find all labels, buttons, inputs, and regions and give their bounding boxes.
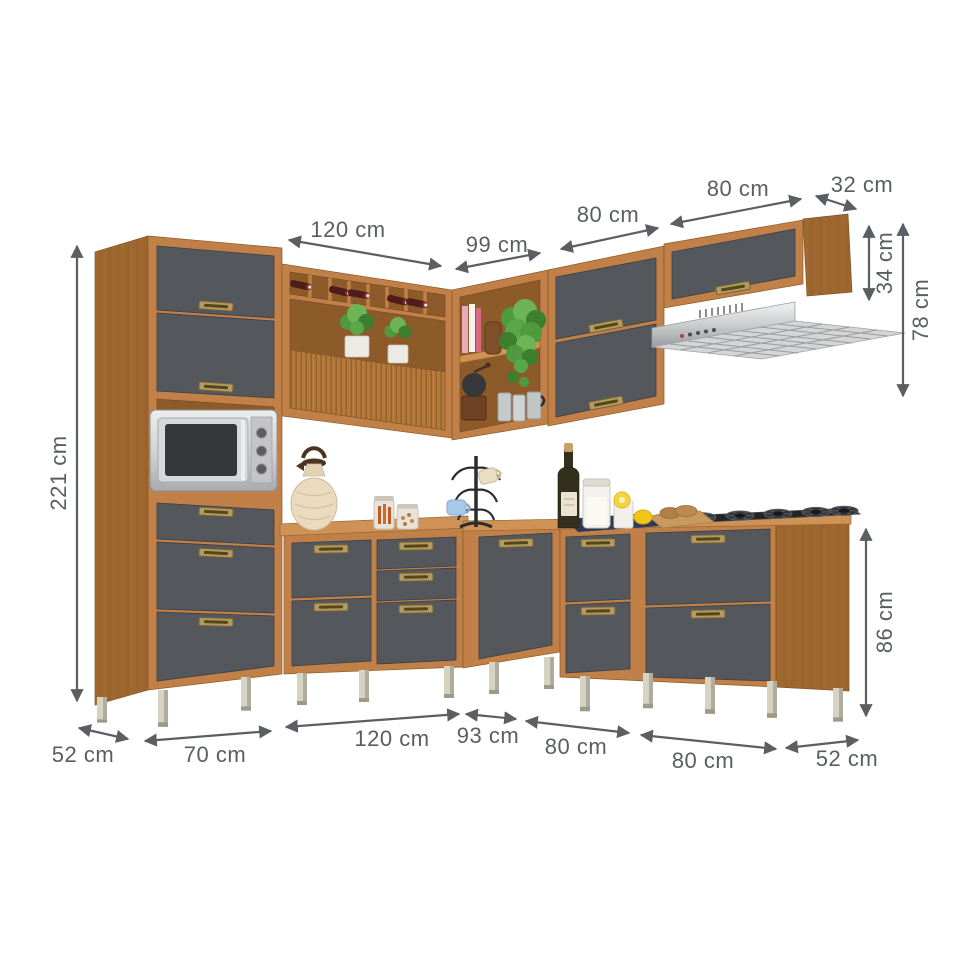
kitchen-dimension-diagram: 120 cm 99 cm 80 cm 80 cm 32 cm 34 cm 78 … (0, 0, 975, 975)
base-cabinet-left (284, 528, 463, 705)
dim-arrow-tall-width (145, 731, 271, 741)
hood-power-light (680, 334, 684, 338)
base-cabinet-corner (463, 525, 560, 694)
dim-label-tall-width: 70 cm (184, 742, 246, 767)
dim-label-base-right-1-width: 80 cm (545, 734, 607, 759)
dim-label-wall-depth: 32 cm (831, 172, 893, 197)
glass-with-lemon (614, 492, 633, 528)
wine-bottle (558, 443, 579, 528)
storage-jar (583, 479, 610, 528)
tall-cabinet-side-grain (95, 236, 148, 705)
books (462, 304, 481, 353)
lemon (634, 510, 652, 524)
ceramic-jar (485, 322, 501, 354)
dim-label-base-right-2-width: 80 cm (672, 748, 734, 773)
dim-label-base-cabinet-height: 86 cm (872, 591, 897, 653)
dim-label-base-corner-width: 93 cm (457, 723, 519, 748)
dim-arrow-base-right-1-width (526, 721, 629, 733)
dim-label-wall-mid-width: 80 cm (577, 202, 639, 227)
microwave (150, 410, 277, 491)
kitchen-illustration: 120 cm 99 cm 80 cm 80 cm 32 cm 34 cm 78 … (0, 0, 975, 975)
dim-label-wall-left-width: 120 cm (310, 217, 385, 242)
dim-arrow-wall-left-width (289, 240, 441, 266)
microwave-knob (257, 464, 267, 474)
dim-label-wall-hood-width: 80 cm (707, 176, 769, 201)
microwave-knob (257, 446, 267, 456)
dim-arrow-wall-mid-width (561, 228, 658, 249)
dim-label-total-height: 221 cm (46, 435, 71, 510)
dim-arrow-wall-hood-width (671, 199, 801, 224)
thermal-carafe (291, 448, 337, 530)
corner-wall-shelf (452, 270, 548, 440)
dim-arrow-base-right-2-width (641, 735, 776, 749)
dim-label-tall-depth: 52 cm (52, 742, 114, 767)
wall-unit-left (282, 264, 452, 438)
wine-bottle-label (561, 492, 577, 516)
dim-label-base-depth: 52 cm (816, 746, 878, 771)
dim-label-wall-zone-height: 78 cm (908, 279, 933, 341)
moka-pot (527, 392, 544, 419)
mug-blue (447, 500, 470, 515)
microwave-knob (257, 428, 267, 438)
range-hood (652, 302, 905, 359)
wall-cabinet-double (548, 246, 664, 426)
dim-arrow-tall-depth (79, 728, 128, 739)
microwave-door-handle (241, 420, 245, 480)
dim-label-hood-cabinet-height: 34 cm (872, 232, 897, 294)
canister (498, 393, 511, 421)
dim-arrow-base-corner-width (466, 714, 516, 719)
wall-cabinet-hood (664, 214, 852, 308)
base-corner-door (479, 533, 552, 659)
canister (513, 395, 525, 421)
tall-cabinet (95, 236, 282, 727)
dim-label-wall-corner-width: 99 cm (466, 232, 528, 257)
base-cabinets-right (560, 515, 849, 722)
microwave-door-glass (165, 424, 237, 476)
dim-label-base-left-width: 120 cm (354, 726, 429, 751)
dim-arrow-wall-depth (816, 196, 856, 209)
